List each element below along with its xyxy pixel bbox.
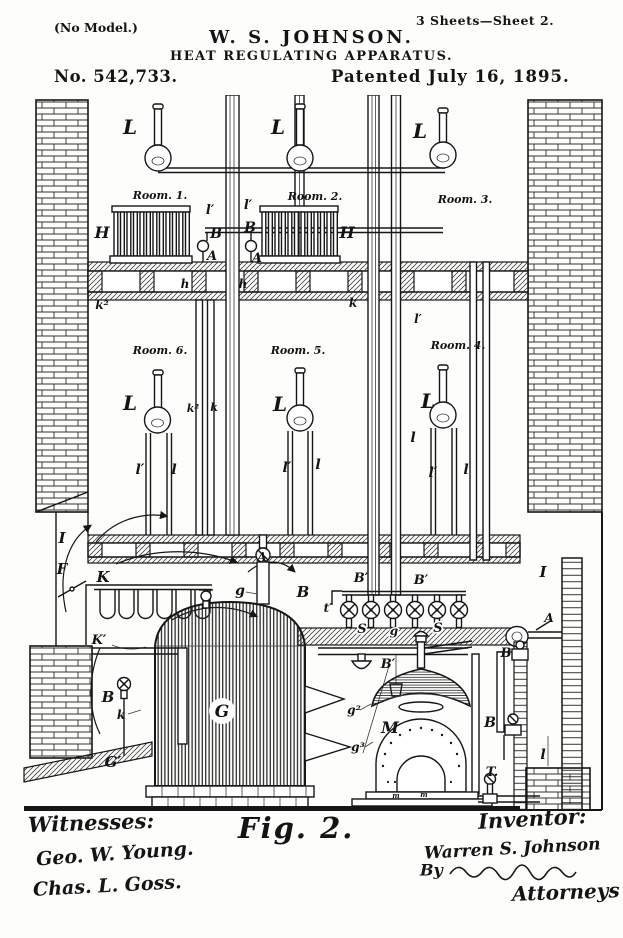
part-label: h — [181, 277, 190, 291]
part-label: A — [205, 249, 217, 264]
part-label: L — [272, 392, 287, 416]
part-label: L — [122, 115, 137, 139]
part-label: l — [410, 430, 415, 446]
attorneys-label: Attorneys — [512, 878, 620, 906]
thermostat-room3 — [430, 108, 456, 168]
part-label: I — [538, 563, 547, 581]
part-label: m — [420, 790, 427, 799]
sheet-note: 3 Sheets—Sheet 2. — [416, 13, 554, 28]
part-label: m — [392, 791, 399, 800]
part-label: l′ — [428, 465, 437, 481]
part-label: K — [95, 568, 110, 586]
part-label: B′ — [353, 571, 369, 586]
part-label: A — [543, 611, 553, 625]
part-label: I — [57, 529, 66, 547]
part-label: l′ — [206, 203, 215, 218]
part-label: H — [93, 223, 110, 242]
basement-ceiling-beam — [88, 535, 520, 563]
part-label: H — [338, 223, 355, 242]
thermostat-room2 — [287, 104, 313, 171]
part-label: L — [412, 119, 427, 143]
thermostat-room6 — [145, 370, 172, 535]
part-label: B — [101, 688, 115, 706]
patent-date: Patented July 16, 1895. — [331, 67, 570, 86]
part-label: Room. 5. — [270, 344, 326, 357]
patent-drawing: LLLRoom. 1.Room. 2.Room. 3.HHl′l′BBAAhhk… — [0, 95, 623, 815]
part-label: B — [483, 715, 496, 731]
part-label: G′ — [105, 753, 122, 771]
part-label: B — [209, 226, 222, 242]
part-label: G — [215, 702, 230, 722]
part-label: l′ — [414, 312, 423, 326]
part-label: A — [256, 550, 266, 564]
attorney-by-line: By — [420, 860, 598, 882]
patent-number: No. 542,733. — [54, 67, 178, 86]
part-label: k² — [187, 402, 200, 415]
part-label: k — [117, 708, 125, 722]
figure-caption: Fig. 2. — [238, 811, 354, 845]
part-label: k — [210, 401, 218, 414]
thermostat-room5 — [287, 368, 313, 535]
part-label: l — [171, 462, 176, 478]
part-label: l′ — [282, 460, 291, 476]
boiler — [146, 590, 314, 808]
part-label: l — [540, 747, 545, 763]
part-label: Room. 3. — [437, 193, 493, 206]
part-label: g² — [347, 703, 361, 717]
part-label: g — [390, 624, 398, 638]
part-label: Room. 6. — [132, 344, 188, 357]
inventor-header-name: W. S. JOHNSON. — [0, 27, 623, 48]
part-label: L — [420, 389, 435, 413]
by-label: By — [420, 861, 443, 880]
part-label: Room. 4. — [430, 339, 486, 352]
patent-title: HEAT REGULATING APPARATUS. — [0, 49, 623, 64]
inventor-heading: Inventor: — [477, 803, 587, 834]
part-label: B′ — [380, 657, 396, 672]
part-label: K′ — [91, 633, 107, 648]
part-label: h — [239, 277, 248, 291]
part-label: l — [315, 457, 320, 473]
part-label: M — [380, 718, 400, 737]
part-label: B — [243, 220, 256, 236]
part-label: l′ — [135, 462, 144, 478]
witness-signature-2: Chas. L. Goss. — [33, 871, 183, 901]
thermostat-room1 — [145, 104, 171, 171]
part-label: l — [463, 462, 468, 478]
part-label: S — [433, 621, 442, 636]
witness-signature-1: Geo. W. Young. — [35, 838, 194, 871]
radiator-room1 — [110, 206, 209, 263]
part-label: l′ — [244, 198, 253, 213]
part-label: g³ — [351, 740, 365, 754]
left-brick-pier — [30, 100, 92, 758]
part-label: B′ — [413, 573, 429, 588]
part-label: L — [270, 115, 285, 139]
part-label: S — [357, 622, 366, 637]
part-label: F — [56, 560, 69, 578]
part-label: B — [296, 583, 310, 601]
part-label: T. — [486, 765, 499, 780]
part-label: k² — [95, 298, 109, 312]
witnesses-heading: Witnesses: — [28, 808, 155, 837]
part-label: t′ — [324, 601, 334, 615]
upper-floor-beam — [88, 262, 528, 300]
part-label: k — [349, 296, 357, 310]
part-label: g — [235, 583, 245, 599]
part-label: A — [250, 251, 262, 266]
part-label: B — [500, 646, 512, 661]
part-label: L — [122, 391, 137, 415]
part-label: Room. 2. — [287, 190, 343, 203]
part-label: Room. 1. — [132, 189, 188, 202]
